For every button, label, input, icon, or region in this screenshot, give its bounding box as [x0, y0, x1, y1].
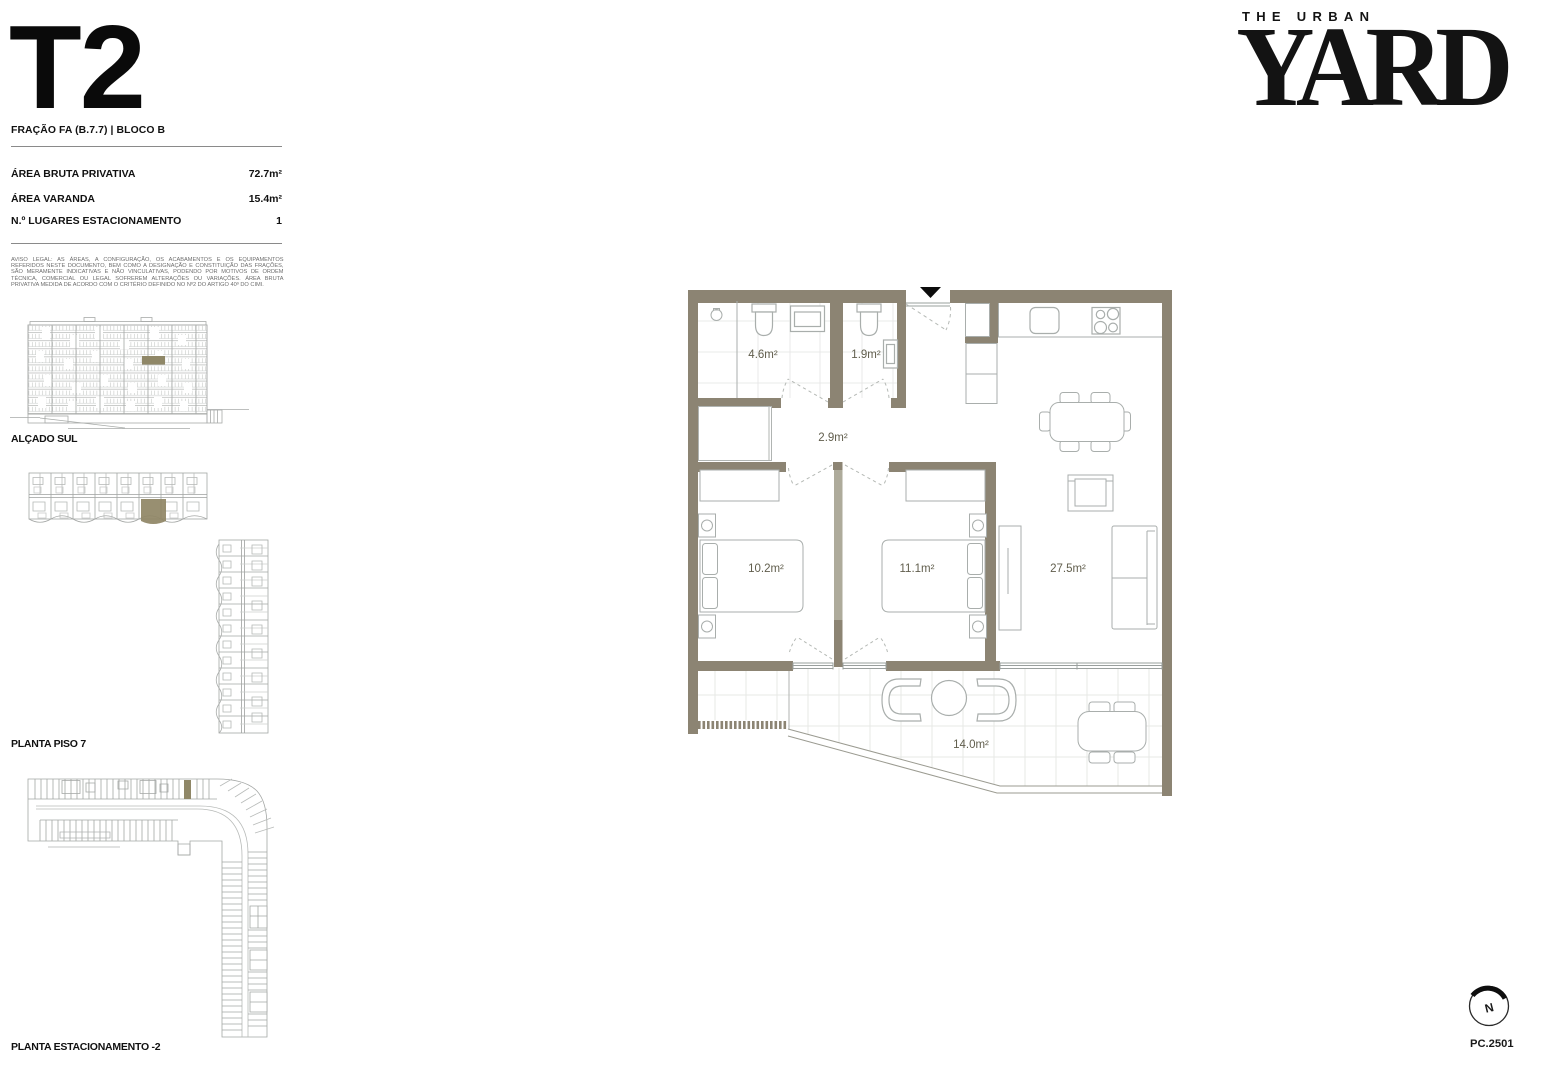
svg-text:N: N: [1483, 1000, 1495, 1016]
svg-text:2.9m²: 2.9m²: [818, 432, 848, 444]
svg-text:11.1m²: 11.1m²: [900, 563, 935, 575]
svg-text:YARD: YARD: [1236, 5, 1508, 120]
svg-text:14.0m²: 14.0m²: [953, 739, 989, 751]
svg-text:27.5m²: 27.5m²: [1050, 563, 1086, 575]
svg-text:10.2m²: 10.2m²: [748, 563, 784, 575]
svg-text:1.9m²: 1.9m²: [851, 349, 881, 361]
svg-text:4.6m²: 4.6m²: [748, 349, 778, 361]
